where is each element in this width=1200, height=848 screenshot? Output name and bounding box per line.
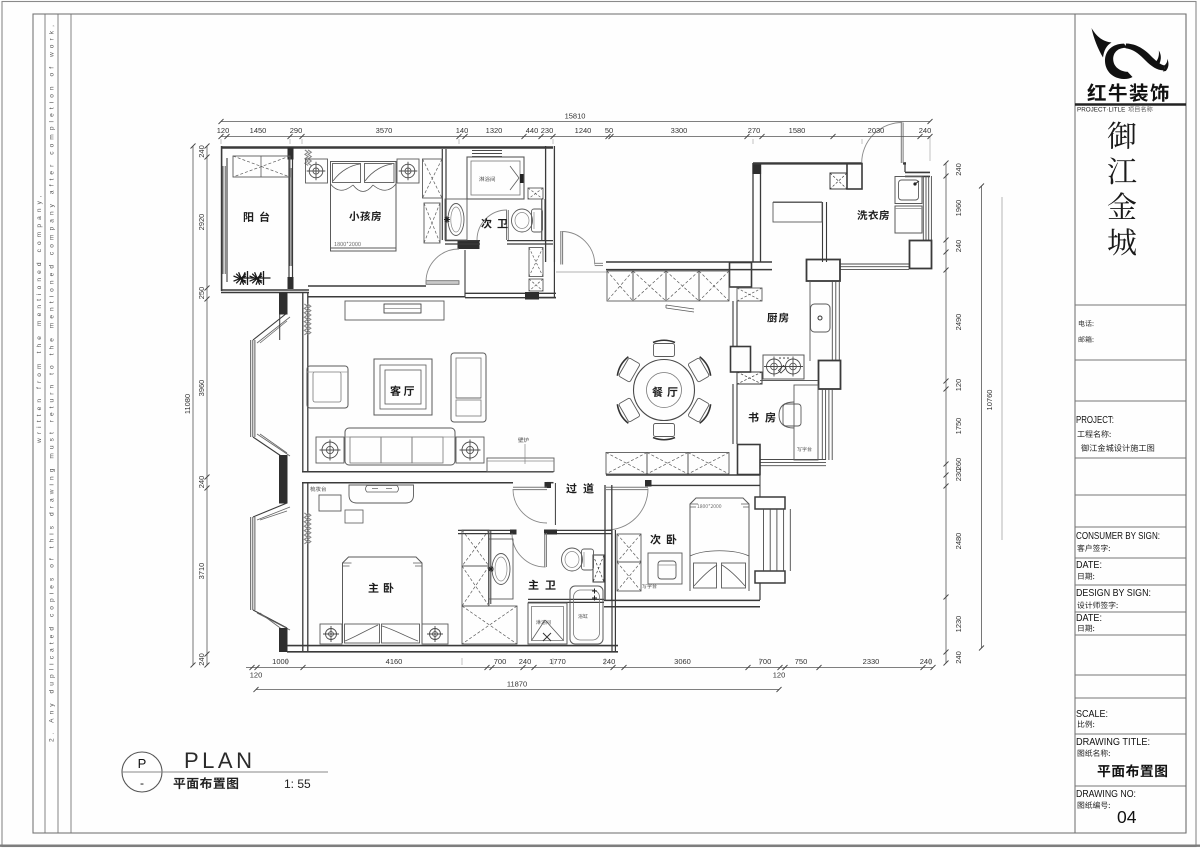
svg-text:700: 700	[759, 657, 772, 666]
svg-text:240: 240	[919, 126, 932, 135]
svg-text:2030: 2030	[868, 126, 885, 135]
svg-text:PROJECT:: PROJECT:	[1076, 414, 1114, 426]
svg-text:270: 270	[748, 126, 761, 135]
svg-text:290: 290	[290, 126, 303, 135]
svg-text:240: 240	[920, 657, 933, 666]
svg-text:CONSUMER BY SIGN:: CONSUMER BY SIGN:	[1076, 530, 1160, 542]
svg-text:240: 240	[954, 163, 963, 176]
svg-text:10760: 10760	[985, 390, 994, 411]
svg-text:DRAWING TITLE:: DRAWING TITLE:	[1076, 736, 1150, 748]
svg-text:2490: 2490	[954, 314, 963, 331]
svg-text:3570: 3570	[376, 126, 393, 135]
svg-text:120: 120	[954, 379, 963, 392]
svg-text:250: 250	[197, 287, 206, 300]
svg-text:440: 440	[526, 126, 539, 135]
svg-text:120: 120	[250, 671, 263, 680]
svg-text:260: 260	[954, 458, 963, 471]
svg-text:2. Any duplicated copies o: 2. Any duplicated copies of this drawing…	[49, 21, 56, 742]
svg-text:240: 240	[954, 240, 963, 253]
svg-text:04: 04	[1117, 807, 1137, 827]
svg-text:120: 120	[773, 671, 786, 680]
svg-text:240: 240	[197, 653, 206, 666]
svg-text:2920: 2920	[197, 214, 206, 231]
svg-text:2480: 2480	[954, 533, 963, 550]
svg-text:3300: 3300	[671, 126, 688, 135]
svg-text:750: 750	[795, 657, 808, 666]
svg-text:PLAN: PLAN	[184, 748, 255, 773]
svg-text:1580: 1580	[789, 126, 806, 135]
svg-text:3960: 3960	[197, 380, 206, 397]
svg-text:240: 240	[197, 145, 206, 158]
svg-text:11080: 11080	[183, 394, 192, 414]
svg-text:written from the mentioned: written from the mentioned company,	[36, 192, 43, 445]
svg-text:DATE:: DATE:	[1076, 559, 1102, 571]
svg-text:1240: 1240	[575, 126, 592, 135]
svg-text:4160: 4160	[386, 657, 403, 666]
svg-text:50: 50	[605, 126, 613, 135]
svg-text:11870: 11870	[507, 680, 527, 689]
svg-text:1000: 1000	[272, 657, 289, 666]
svg-text:3060: 3060	[674, 657, 691, 666]
svg-text:230: 230	[954, 469, 963, 482]
svg-text:3710: 3710	[197, 563, 206, 580]
svg-text:DRAWING NO:: DRAWING NO:	[1076, 788, 1136, 800]
svg-text:1750: 1750	[954, 418, 963, 435]
svg-text:P: P	[138, 756, 147, 771]
svg-text:2330: 2330	[863, 657, 880, 666]
svg-text:240: 240	[519, 657, 532, 666]
svg-text:1230: 1230	[954, 616, 963, 633]
svg-text:PROJECT·LITLE: PROJECT·LITLE	[1077, 107, 1125, 114]
svg-text:240: 240	[954, 651, 963, 664]
svg-text:1960: 1960	[954, 200, 963, 217]
svg-text:SCALE:: SCALE:	[1076, 708, 1108, 720]
svg-text:230: 230	[541, 126, 554, 135]
svg-text:1450: 1450	[250, 126, 267, 135]
svg-text:240: 240	[197, 476, 206, 489]
svg-text:140: 140	[456, 126, 469, 135]
svg-text:700: 700	[494, 657, 507, 666]
svg-text:240: 240	[603, 657, 616, 666]
svg-text:1770: 1770	[549, 657, 566, 666]
svg-text:15810: 15810	[565, 112, 586, 121]
svg-text:1: 55: 1: 55	[284, 777, 311, 791]
svg-text:DESIGN BY SIGN:: DESIGN BY SIGN:	[1076, 587, 1151, 599]
svg-text:120: 120	[217, 126, 230, 135]
svg-text:-: -	[140, 776, 144, 790]
svg-text:1320: 1320	[486, 126, 503, 135]
svg-text:DATE:: DATE:	[1076, 612, 1102, 624]
